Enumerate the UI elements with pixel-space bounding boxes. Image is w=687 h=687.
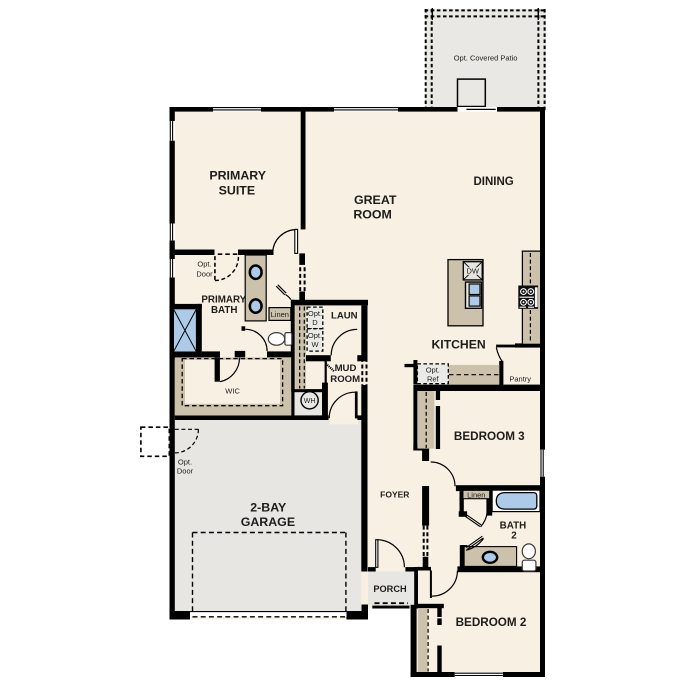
svg-text:W: W: [311, 340, 319, 349]
svg-text:PORCH: PORCH: [373, 584, 407, 594]
svg-text:PRIMARY: PRIMARY: [201, 295, 246, 306]
svg-text:DW: DW: [466, 267, 479, 276]
svg-text:ROOM: ROOM: [330, 374, 360, 385]
svg-text:DINING: DINING: [473, 176, 513, 188]
svg-text:Door: Door: [177, 466, 194, 475]
svg-text:WH: WH: [304, 398, 316, 405]
svg-text:Ref: Ref: [427, 374, 440, 383]
svg-text:Linen: Linen: [271, 310, 289, 319]
svg-text:KITCHEN: KITCHEN: [432, 338, 486, 352]
svg-text:Opt.: Opt.: [197, 259, 211, 268]
svg-text:D: D: [312, 318, 318, 327]
svg-text:Linen: Linen: [467, 490, 485, 499]
svg-text:BEDROOM 2: BEDROOM 2: [456, 616, 527, 629]
svg-text:GREAT: GREAT: [354, 193, 397, 207]
svg-text:Pantry: Pantry: [509, 374, 531, 383]
svg-text:BEDROOM 3: BEDROOM 3: [454, 430, 525, 443]
svg-text:Door: Door: [196, 269, 213, 278]
svg-text:Opt.: Opt.: [308, 331, 322, 340]
svg-text:ROOM: ROOM: [353, 207, 392, 221]
svg-text:GARAGE: GARAGE: [241, 515, 295, 529]
svg-text:WIC: WIC: [225, 387, 240, 396]
svg-text:PRIMARY: PRIMARY: [209, 168, 266, 182]
svg-text:LAUN: LAUN: [331, 310, 358, 321]
svg-text:Opt.: Opt.: [426, 365, 440, 374]
svg-text:MUD: MUD: [335, 363, 357, 374]
svg-text:FOYER: FOYER: [380, 489, 409, 499]
svg-text:2: 2: [511, 531, 517, 542]
svg-text:BATH: BATH: [211, 305, 237, 316]
svg-text:SUITE: SUITE: [219, 184, 256, 198]
svg-text:Opt. Covered Patio: Opt. Covered Patio: [454, 54, 518, 63]
svg-text:Opt.: Opt.: [308, 309, 322, 318]
svg-text:2-BAY: 2-BAY: [250, 501, 287, 515]
svg-text:Opt.: Opt.: [178, 457, 192, 466]
